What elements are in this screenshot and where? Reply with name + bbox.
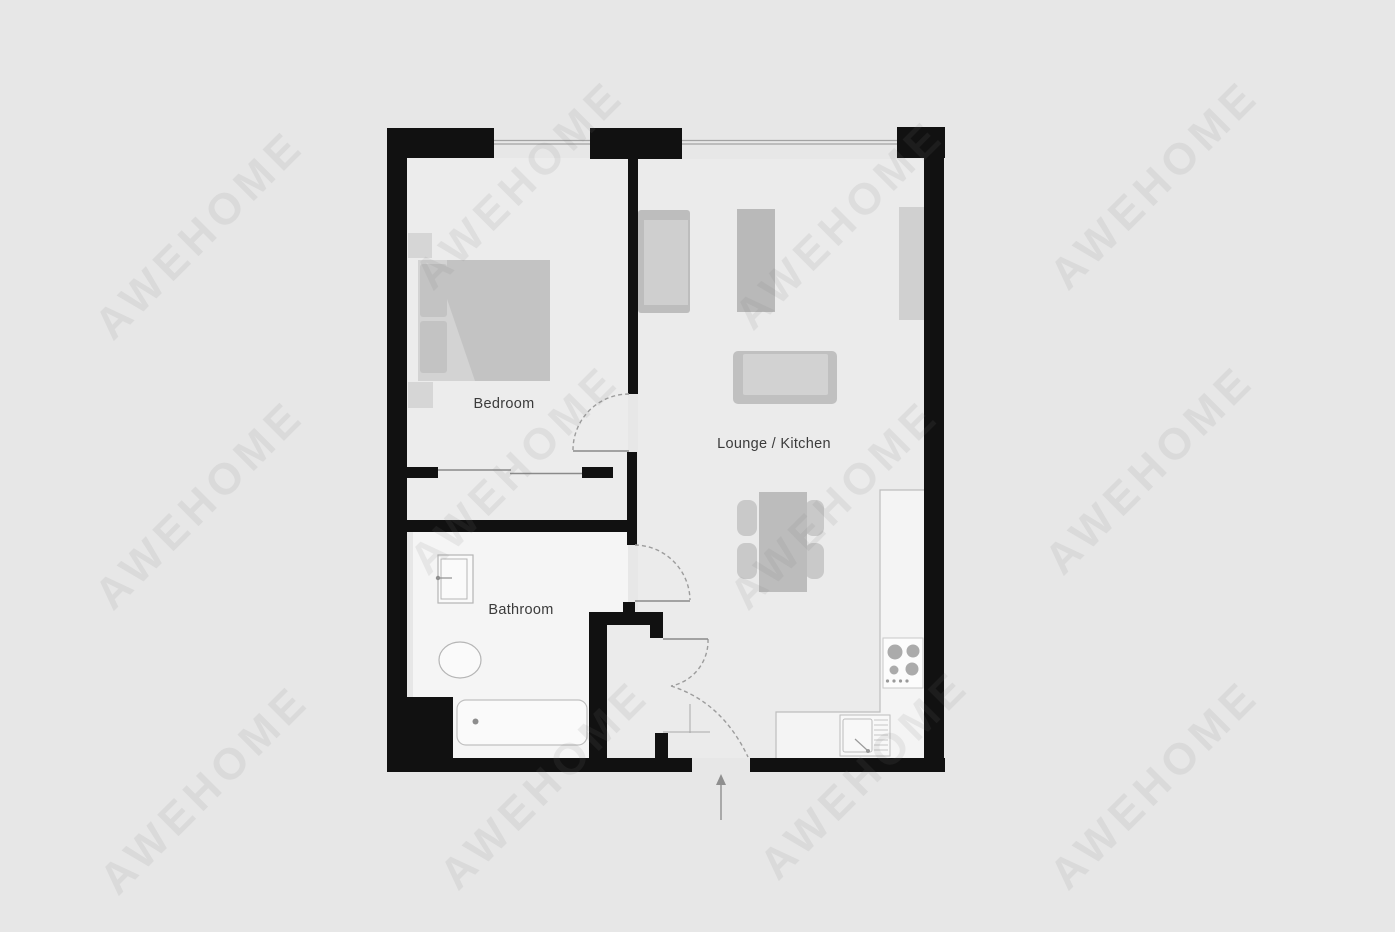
floorplan-page: Bedroom Lounge / Kitchen Bathroom AWEHOM… [0, 0, 1395, 932]
bathtub [457, 700, 587, 745]
closet-floor [607, 625, 663, 758]
floorplan-drawing: Bedroom Lounge / Kitchen Bathroom [0, 0, 1395, 932]
toilet [439, 642, 481, 678]
tv-unit [737, 209, 775, 312]
bathroom-label: Bathroom [488, 602, 553, 618]
pillow-top [420, 264, 447, 317]
nightstand-bottom [408, 382, 433, 408]
hob [883, 638, 923, 688]
dining-table [759, 492, 807, 592]
bedroom-window [494, 141, 590, 145]
lounge-window [682, 141, 897, 145]
sideboard [899, 207, 924, 320]
nightstand-top [408, 233, 432, 258]
armchair [638, 210, 690, 313]
pillow-bottom [420, 321, 447, 373]
sofa [733, 351, 837, 404]
lounge-kitchen-label: Lounge / Kitchen [717, 436, 831, 452]
washbasin [436, 555, 473, 603]
bedroom-label: Bedroom [474, 396, 535, 412]
drain-icon [473, 719, 479, 725]
entry-arrow [716, 774, 726, 820]
kitchen-sink [840, 715, 890, 756]
